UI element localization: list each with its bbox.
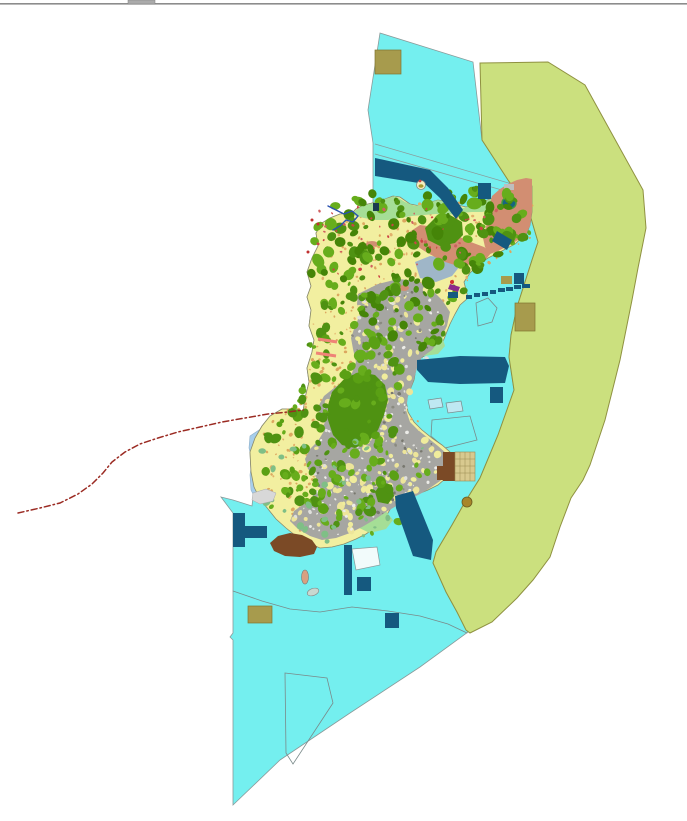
buoy-marker-dot <box>419 180 422 183</box>
navy-pier-dashes <box>506 287 513 291</box>
khaki-square-small-east <box>501 276 512 284</box>
navy-pier-dashes <box>482 292 488 296</box>
speckle-dark-on-gray <box>415 337 417 339</box>
khaki-rect-east <box>515 303 535 331</box>
khaki-square-bottom <box>248 606 272 623</box>
navy-square-ne-water <box>514 273 524 284</box>
window-top-line <box>0 3 687 5</box>
speckle-red-north <box>331 212 334 215</box>
navy-pier-dashes <box>514 285 521 289</box>
navy-harbor-band <box>417 356 509 384</box>
plan-block-brown <box>443 452 455 481</box>
speckle-green-north <box>330 202 341 210</box>
fish-pond-1 <box>428 398 443 409</box>
plan-block-brown <box>437 466 443 480</box>
speckle-dark-on-gray <box>419 328 422 332</box>
navy-tshape-southwest <box>245 526 267 538</box>
pier-navy-detail <box>448 292 458 298</box>
pier-red-dot <box>450 280 454 284</box>
navy-bar-south <box>344 545 352 595</box>
navy-bar-south <box>357 577 371 591</box>
parcel-speckle-orange <box>351 310 353 312</box>
window-top-handle <box>128 0 155 4</box>
speckle-red-north <box>318 209 321 213</box>
speckle-green-south <box>290 447 297 452</box>
speckle-green-center <box>339 370 351 379</box>
fish-pond-2 <box>446 401 463 413</box>
navy-tshape-southwest <box>233 513 245 547</box>
navy-pier-dashes <box>490 290 496 294</box>
navy-pier-dashes <box>522 284 530 288</box>
map-viewport <box>0 0 687 821</box>
navy-square-east <box>490 387 503 403</box>
parcel-speckle-orange <box>518 243 520 245</box>
parcel-speckle-orange <box>406 252 408 255</box>
map-canvas[interactable] <box>0 0 687 821</box>
navy-bar-south <box>385 613 399 628</box>
khaki-blob-southeast <box>462 497 472 507</box>
navy-pier-dashes <box>474 293 480 297</box>
buoy-marker-core <box>419 184 424 188</box>
red-coast-dots <box>307 251 310 254</box>
islet-salmon <box>302 570 309 584</box>
red-coast-dots <box>311 219 314 222</box>
speckle-green-center <box>264 432 273 437</box>
navy-pier-dashes <box>498 288 505 292</box>
parcel-speckle-orange <box>289 482 292 485</box>
navy-notch-northcoast <box>373 203 379 211</box>
navy-rect-north <box>478 183 491 199</box>
khaki-square-top <box>375 50 401 74</box>
navy-pier-dashes <box>466 295 472 299</box>
red-coast-dots <box>317 223 320 226</box>
